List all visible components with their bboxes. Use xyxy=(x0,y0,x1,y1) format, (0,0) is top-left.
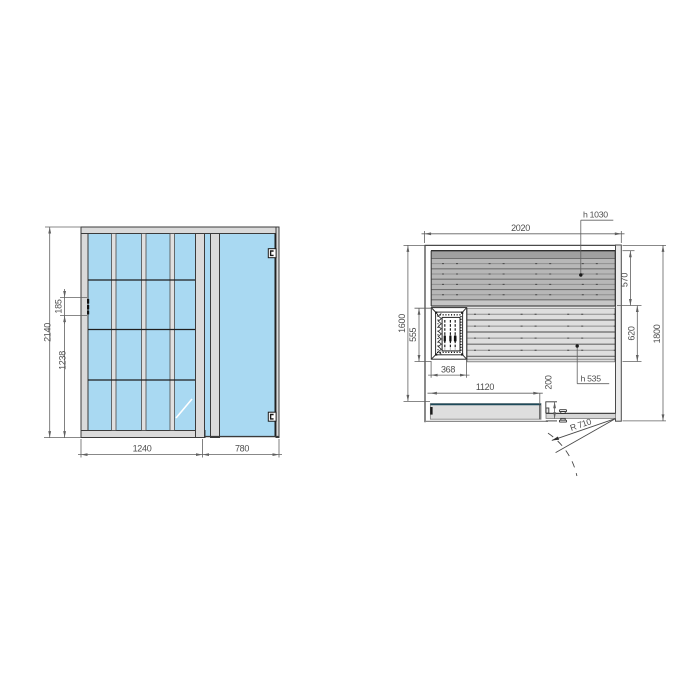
svg-text:1238: 1238 xyxy=(58,351,68,370)
svg-text:h 1030: h 1030 xyxy=(583,210,608,220)
svg-text:1120: 1120 xyxy=(476,382,494,392)
svg-text:2020: 2020 xyxy=(511,223,530,233)
svg-text:368: 368 xyxy=(441,365,455,375)
svg-text:2140: 2140 xyxy=(43,323,53,342)
svg-text:1600: 1600 xyxy=(397,314,407,333)
svg-text:780: 780 xyxy=(235,444,249,454)
svg-text:185: 185 xyxy=(54,299,64,313)
svg-text:1240: 1240 xyxy=(133,444,152,454)
svg-text:200: 200 xyxy=(544,375,554,389)
svg-text:620: 620 xyxy=(626,326,636,340)
svg-text:570: 570 xyxy=(620,273,630,287)
svg-text:h 535: h 535 xyxy=(581,374,602,384)
svg-text:555: 555 xyxy=(408,327,418,341)
svg-text:1800: 1800 xyxy=(652,324,662,343)
